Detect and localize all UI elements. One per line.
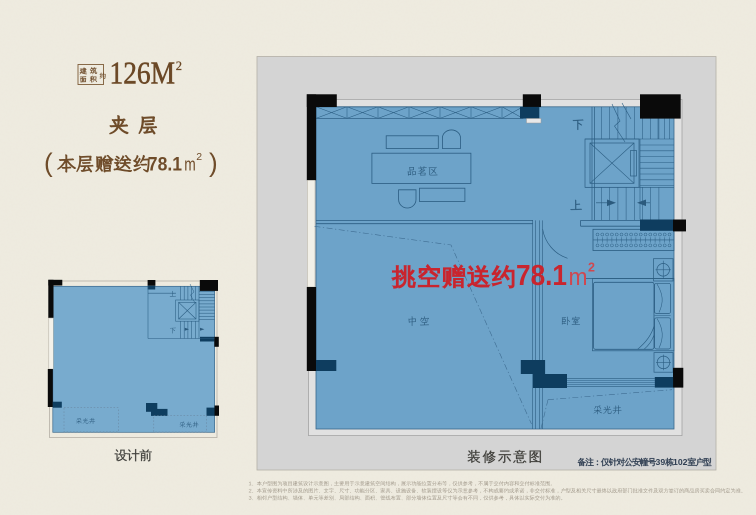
svg-text:78.1: 78.1	[148, 153, 182, 175]
svg-text:): )	[209, 148, 218, 178]
svg-text:2: 2	[176, 59, 182, 73]
svg-text:(: (	[44, 148, 53, 178]
svg-text:102: 102	[673, 457, 688, 467]
svg-text:m: m	[569, 264, 588, 291]
svg-text:78.1: 78.1	[516, 260, 567, 292]
svg-text:126M: 126M	[110, 56, 176, 91]
svg-text:2: 2	[196, 151, 202, 163]
svg-text:39: 39	[656, 457, 666, 467]
svg-text:m: m	[184, 154, 196, 174]
svg-text:2: 2	[588, 261, 595, 275]
